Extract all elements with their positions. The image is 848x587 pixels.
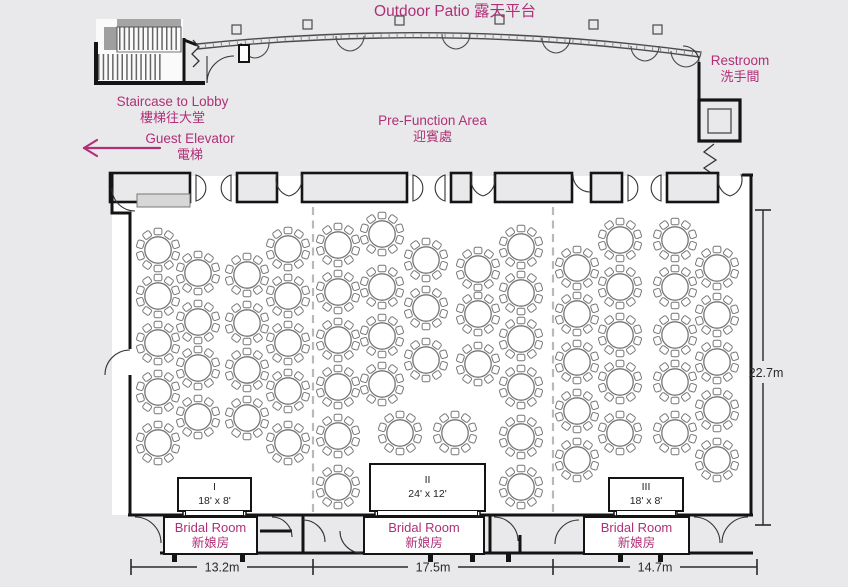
bridal-room-1-label-en: Bridal Room <box>175 521 247 536</box>
bridal-room-1: Bridal Room 新娘房 <box>163 516 258 555</box>
stage-1-size: 18' x 8' <box>198 495 231 509</box>
stage-3-size: 18' x 8' <box>630 495 663 509</box>
side-dimension-label: 22.7m <box>749 366 784 380</box>
bridal-room-1-label-zh: 新娘房 <box>192 536 230 550</box>
stage-3: III 18' x 8' <box>608 477 684 512</box>
stage-2-size: 24' x 12' <box>408 488 446 502</box>
left-arrow-icon <box>84 140 160 156</box>
entrance-corridor <box>184 38 249 83</box>
staircase-icon <box>96 19 205 83</box>
bottom-dimension-label: 17.5m <box>416 561 451 575</box>
bridal-room-2: Bridal Room 新娘房 <box>363 516 485 555</box>
bottom-dimension-label: 14.7m <box>638 561 673 575</box>
floor-plan-page: { "colors": { "accent": "#b03077", "wall… <box>0 0 848 587</box>
bridal-room-2-label-zh: 新娘房 <box>405 536 443 550</box>
bottom-dimension-label: 13.2m <box>205 561 240 575</box>
stage-2: II 24' x 12' <box>369 463 486 512</box>
patio-columns <box>232 15 662 34</box>
bridal-room-3: Bridal Room 新娘房 <box>583 516 690 555</box>
stage-2-numeral: II <box>425 474 431 488</box>
stage-3-numeral: III <box>642 481 651 495</box>
stage-1-numeral: I <box>213 481 216 495</box>
bridal-room-2-label-en: Bridal Room <box>388 521 460 536</box>
patio-curved-wall <box>197 33 700 57</box>
bridal-room-3-label-en: Bridal Room <box>601 521 673 536</box>
bridal-room-3-label-zh: 新娘房 <box>618 536 656 550</box>
stage-1: I 18' x 8' <box>177 477 252 512</box>
